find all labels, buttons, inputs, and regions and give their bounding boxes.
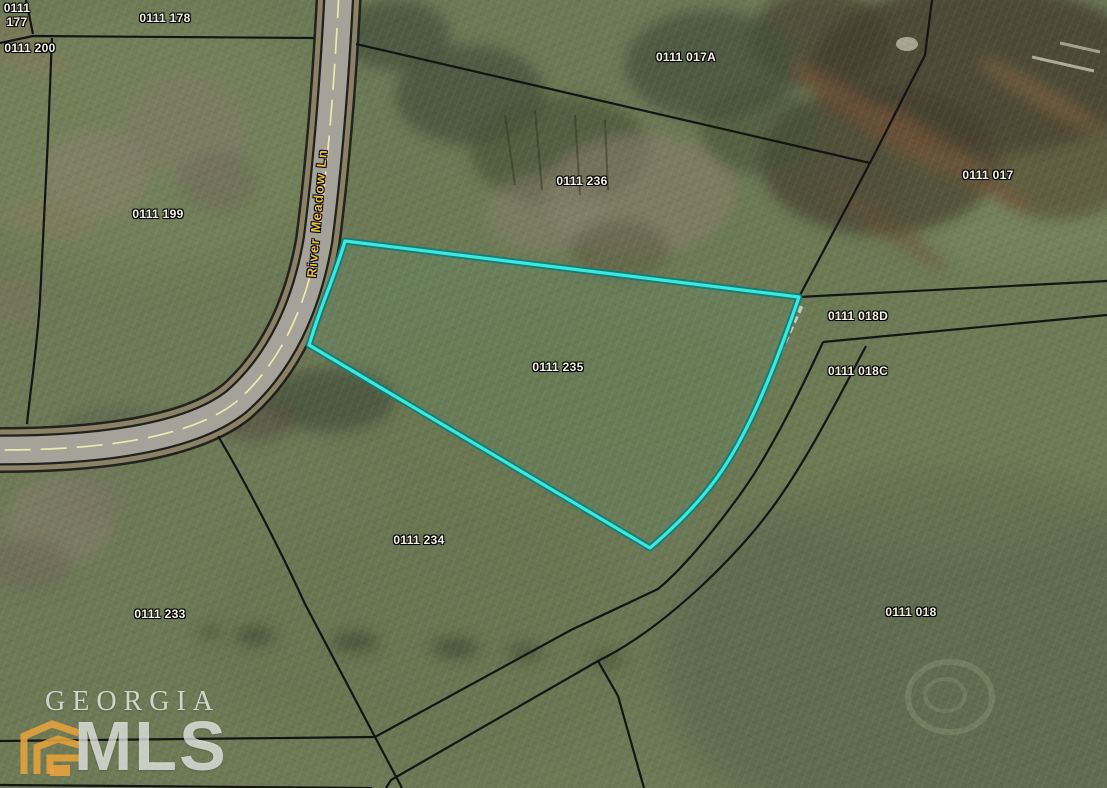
parcel-label-0111-200: 0111 200 [4, 42, 55, 56]
parcel-label-0111-234: 0111 234 [393, 534, 444, 548]
parcel-label-0111-236: 0111 236 [556, 175, 607, 189]
parcel-label-0111-018: 0111 018 [885, 606, 936, 620]
parcel-label-0111-233: 0111 233 [134, 608, 185, 622]
parcel-label-0111-017: 0111 017 [962, 169, 1013, 183]
parcel-map[interactable]: 0111 177 0111 178 0111 200 0111 199 0111… [0, 0, 1107, 788]
parcel-label-0111-199: 0111 199 [132, 208, 183, 222]
labels-layer: 0111 177 0111 178 0111 200 0111 199 0111… [0, 0, 1107, 788]
road-name-label: River Meadow Ln [304, 148, 330, 278]
parcel-label-0111-178: 0111 178 [139, 12, 190, 26]
parcel-label-0111-017A: 0111 017A [656, 51, 716, 65]
parcel-label-0111-177: 0111 177 [0, 2, 36, 30]
parcel-label-0111-235: 0111 235 [532, 361, 583, 375]
parcel-label-0111-018C: 0111 018C [828, 365, 888, 379]
parcel-label-0111-018D: 0111 018D [828, 310, 888, 324]
